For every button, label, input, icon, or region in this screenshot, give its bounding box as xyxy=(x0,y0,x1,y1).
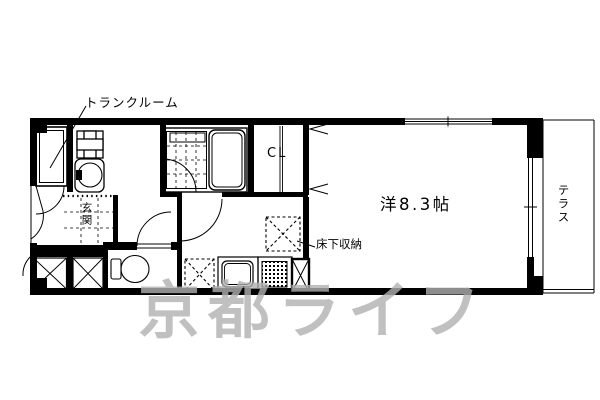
closet-door-arrows xyxy=(310,124,328,194)
terrace-label: テラス xyxy=(557,184,569,225)
windows xyxy=(31,117,537,258)
meter-box-door-arc xyxy=(23,257,30,276)
entrance-door-leaf xyxy=(36,186,43,211)
underfloor-storage-label: 床下収納 xyxy=(316,239,362,251)
floorplan-canvas: トランクルーム 玄関 CL 洋8.3帖 床下収納 テラス 京都ライフ xyxy=(0,0,600,400)
bathroom xyxy=(163,128,247,192)
watermark-kyoto-life: 京都ライフ xyxy=(138,260,488,350)
bathroom-door-arc xyxy=(163,159,196,192)
entrance-door-arc xyxy=(31,211,43,239)
entrance-label: 玄関 xyxy=(81,202,92,227)
main-room-label: 洋8.3帖 xyxy=(380,197,452,214)
washbasin xyxy=(75,159,104,192)
toilet-tank xyxy=(111,259,121,279)
closet-label: CL xyxy=(267,147,287,160)
toilet-door-arc xyxy=(137,212,171,246)
bathtub xyxy=(209,130,245,190)
washing-machine-space xyxy=(77,131,103,158)
trunk-room-label: トランクルーム xyxy=(85,97,179,110)
kitchen-door-arc xyxy=(181,199,222,241)
